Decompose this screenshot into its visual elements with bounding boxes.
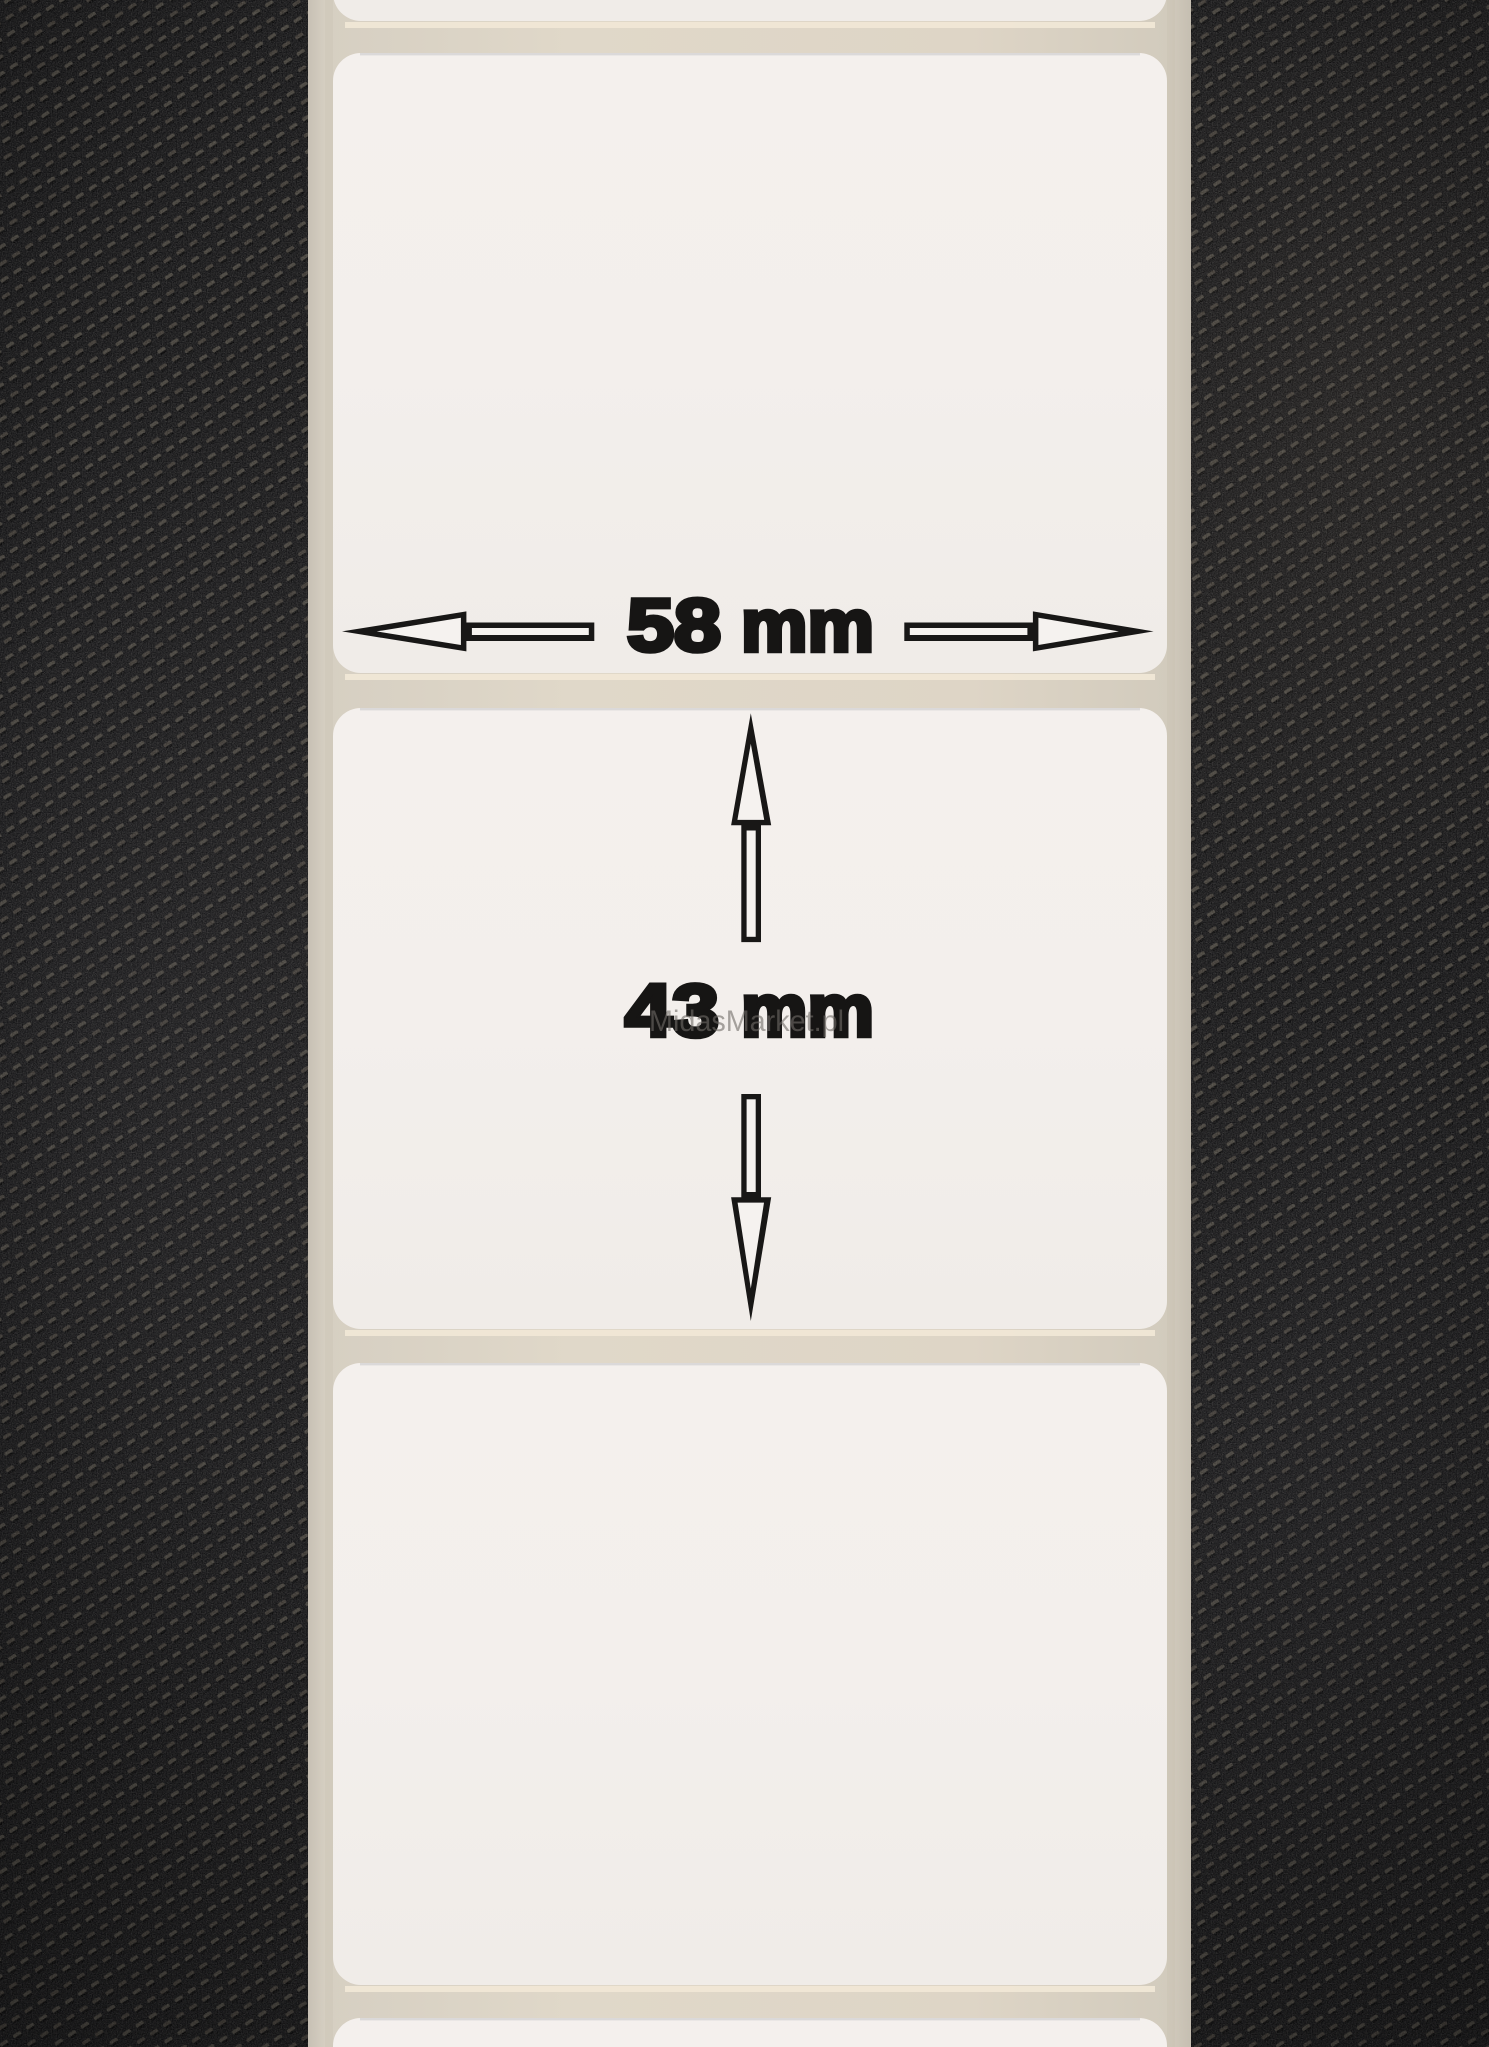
- svg-text:mm: mm: [741, 584, 874, 667]
- svg-text:MidasMarket.pl: MidasMarket.pl: [649, 1005, 844, 1038]
- svg-text:58: 58: [627, 584, 721, 667]
